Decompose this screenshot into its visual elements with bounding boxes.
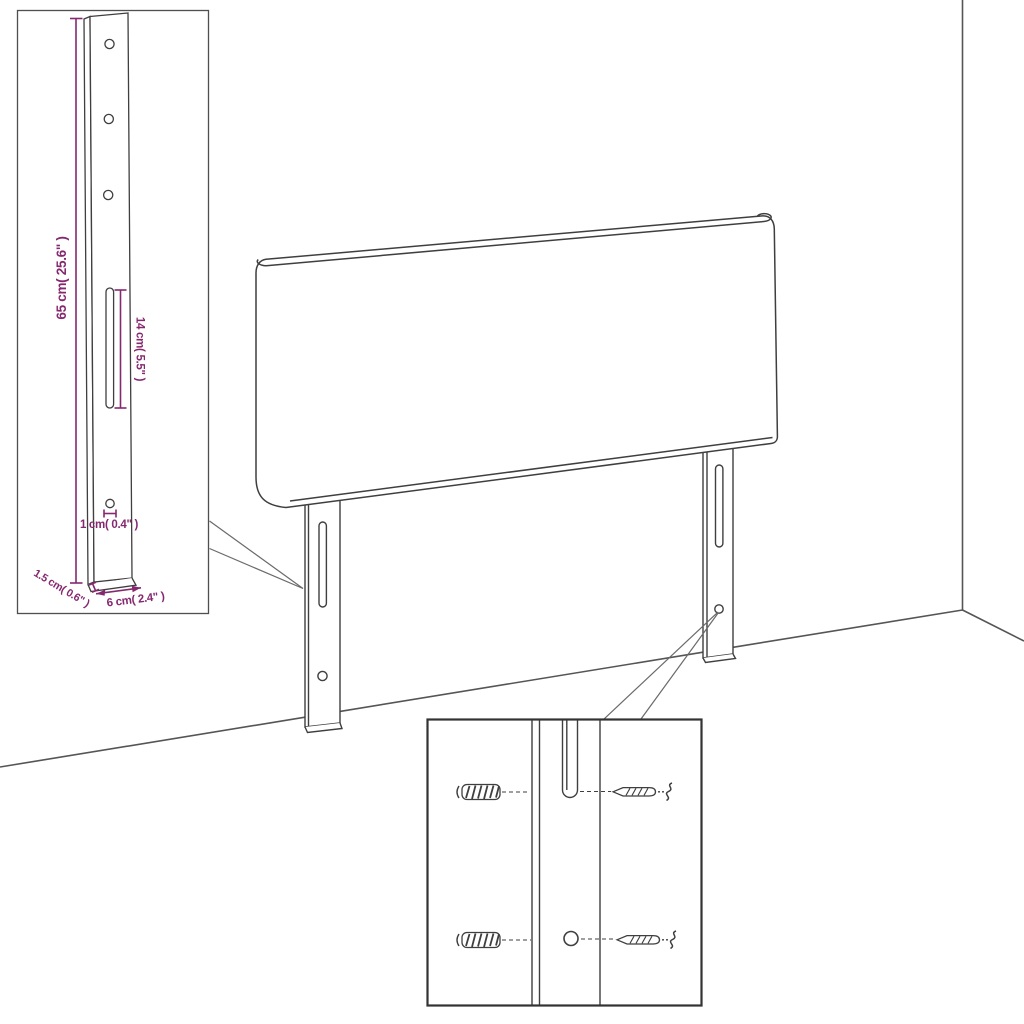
assembly-diagram: 65 cm( 25.6" ) 14 cm( 5.5" ) 1 cm( 0.4" …: [0, 0, 1024, 1024]
dim-hole-label: 1 cm( 0.4" ): [80, 519, 139, 531]
bracket-hole-top: [105, 39, 114, 48]
headboard-panel: [256, 214, 777, 508]
headboard-diagram-canvas: 65 cm( 25.6" ) 14 cm( 5.5" ) 1 cm( 0.4" …: [0, 0, 1024, 1024]
leader-line: [641, 613, 719, 720]
bracket-inset: 65 cm( 25.6" ) 14 cm( 5.5" ) 1 cm( 0.4" …: [18, 11, 209, 614]
floor-line-left-a: [0, 717, 305, 767]
bracket-drawing: [84, 13, 136, 592]
left-leg: [305, 496, 342, 733]
bracket-slot: [106, 288, 114, 408]
left-leg-hole: [318, 671, 327, 680]
right-leg-hole: [715, 605, 723, 613]
right-leg-slot: [716, 465, 723, 547]
hardware-detail-border: [428, 720, 702, 1006]
hardware-detail-box: [428, 720, 702, 1006]
floor-line-left-b: [340, 652, 703, 711]
dim-slot-label: 14 cm( 5.5" ): [134, 317, 146, 382]
bracket-hole-lower: [104, 190, 113, 199]
bracket-inset-leader-lines: [210, 521, 304, 589]
floor-line-left-c: [733, 610, 963, 647]
bracket-hole-middle: [104, 114, 113, 123]
bracket-small-hole: [106, 499, 114, 507]
left-leg-slot: [319, 522, 326, 607]
floor-line-right: [963, 610, 1024, 641]
right-leg: [703, 447, 736, 663]
dim-height-label: 65 cm( 25.6" ): [54, 236, 69, 319]
